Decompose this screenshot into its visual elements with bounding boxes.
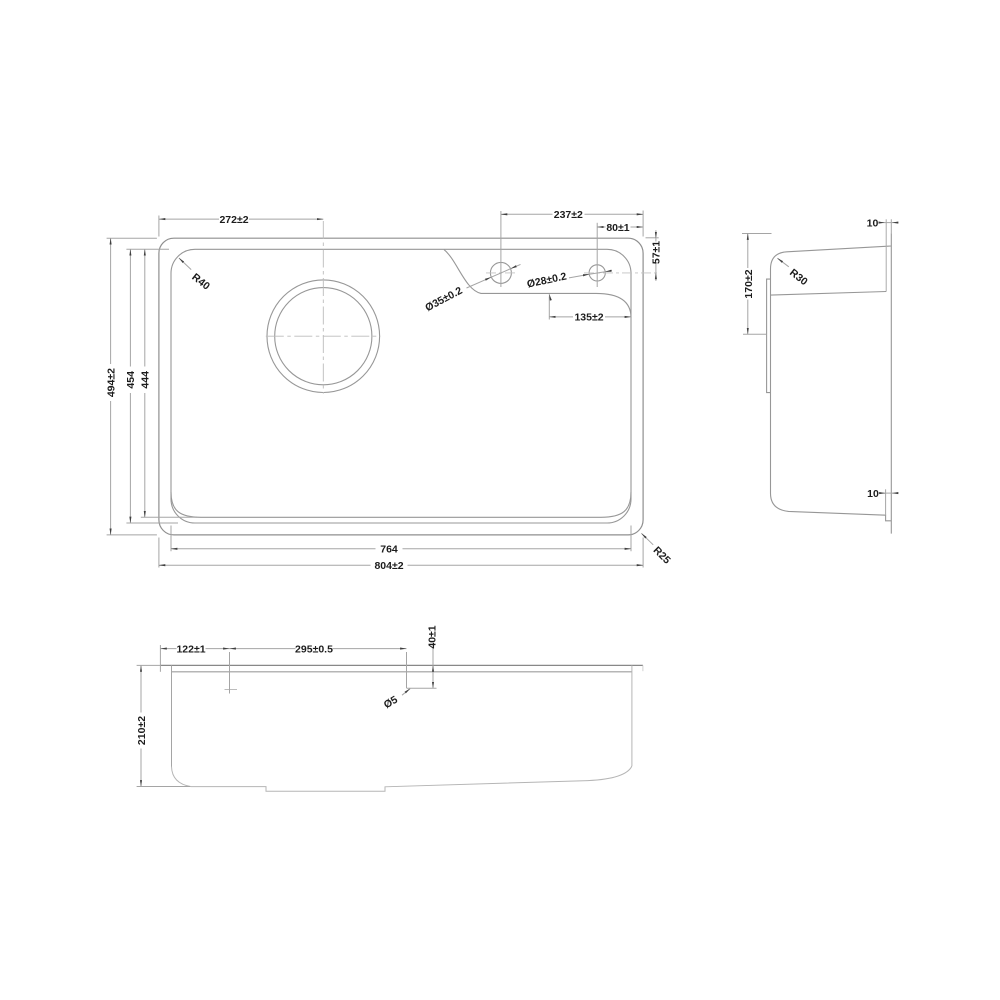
svg-text:R30: R30 [787, 267, 810, 288]
svg-text:122±1: 122±1 [176, 643, 205, 655]
svg-text:764: 764 [380, 544, 398, 556]
svg-text:R25: R25 [651, 544, 673, 566]
svg-text:494±2: 494±2 [105, 368, 117, 397]
svg-text:135±2: 135±2 [574, 312, 603, 324]
svg-text:40±1: 40±1 [427, 625, 439, 648]
svg-text:272±2: 272±2 [219, 214, 248, 226]
svg-text:444: 444 [140, 371, 152, 389]
svg-text:295±0.5: 295±0.5 [295, 643, 333, 655]
svg-text:80±1: 80±1 [606, 222, 629, 234]
svg-text:Ø28±0.2: Ø28±0.2 [526, 270, 568, 290]
svg-text:237±2: 237±2 [554, 209, 583, 221]
svg-text:Ø5: Ø5 [382, 694, 400, 711]
svg-text:210±2: 210±2 [136, 716, 148, 745]
svg-text:R40: R40 [189, 271, 212, 292]
svg-text:454: 454 [125, 371, 137, 389]
svg-text:170±2: 170±2 [743, 269, 755, 298]
svg-text:10: 10 [867, 488, 879, 500]
svg-text:57±1: 57±1 [651, 241, 663, 264]
svg-text:10: 10 [867, 217, 879, 229]
svg-text:Ø35±0.2: Ø35±0.2 [423, 285, 464, 315]
svg-text:804±2: 804±2 [374, 560, 403, 572]
